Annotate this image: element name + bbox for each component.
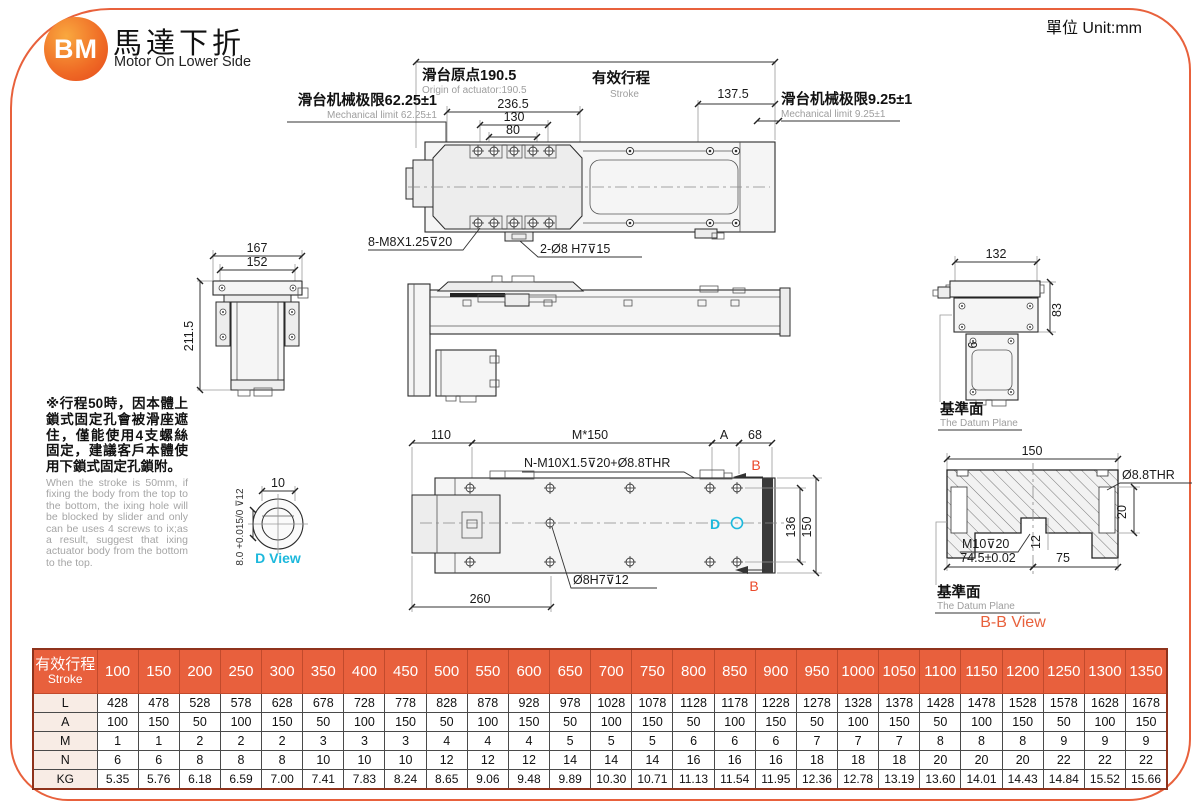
spec-cell: 1378: [879, 694, 920, 713]
stroke-column-header: 750: [632, 649, 673, 694]
row-label-kg: KG: [33, 770, 97, 790]
spec-cell: 150: [508, 713, 549, 732]
dim-136: 136: [784, 517, 798, 538]
stroke-column-header: 900: [755, 649, 796, 694]
stroke-column-header: 1000: [838, 649, 879, 694]
stroke-header-zh: 有效行程: [34, 657, 97, 672]
spec-cell: 14: [591, 751, 632, 770]
stroke-label-zh: 有效行程: [592, 69, 650, 87]
spec-cell: 150: [138, 713, 179, 732]
bb-view-label: B-B View: [980, 614, 1046, 631]
spec-cell: 10: [344, 751, 385, 770]
spec-cell: 8: [961, 732, 1002, 751]
spec-cell: 100: [220, 713, 261, 732]
dim-110: 110: [431, 428, 451, 442]
table-row-kg: KG5.355.766.186.597.007.417.838.248.659.…: [33, 770, 1167, 790]
stroke-column-header: 450: [385, 649, 426, 694]
dim-75: 75: [1056, 551, 1070, 565]
stroke-column-header: 400: [344, 649, 385, 694]
spec-cell: 50: [550, 713, 591, 732]
mounting-holes-label: N-M10X1.5⊽20+Ø8.8THR: [524, 456, 670, 470]
spec-cell: 11.95: [755, 770, 796, 790]
bb-datum-label-en: The Datum Plane: [937, 601, 1015, 612]
section-b-label-top: B: [751, 457, 760, 473]
dim-6: 6: [966, 341, 980, 348]
spec-cell: 150: [262, 713, 303, 732]
dim-130: 130: [504, 110, 525, 124]
dim-260: 260: [470, 592, 491, 606]
stroke-column-header: 1250: [1043, 649, 1084, 694]
spec-cell: 6: [673, 732, 714, 751]
spec-cell: 14: [550, 751, 591, 770]
dim-12: 12: [1029, 535, 1043, 549]
spec-cell: 5: [632, 732, 673, 751]
stroke-50-note: ※行程50時，因本體上鎖式固定孔會被滑座遮住，僅能使用4支螺絲固定，建議客戶本體…: [46, 396, 188, 569]
spec-cell: 4: [467, 732, 508, 751]
dim-167: 167: [247, 241, 268, 255]
spec-cell: 6: [714, 732, 755, 751]
row-label-m: M: [33, 732, 97, 751]
note-text-zh: ※行程50時，因本體上鎖式固定孔會被滑座遮住，僅能使用4支螺絲固定，建議客戶本體…: [46, 396, 188, 475]
spec-cell: 8: [920, 732, 961, 751]
spec-cell: 1228: [755, 694, 796, 713]
stroke-column-header: 650: [550, 649, 591, 694]
spec-cell: 878: [467, 694, 508, 713]
stroke-column-header: 1150: [961, 649, 1002, 694]
spec-cell: 7: [796, 732, 837, 751]
dim-150-bottom: 150: [800, 517, 814, 538]
stroke-column-header: 800: [673, 649, 714, 694]
spec-cell: 18: [838, 751, 879, 770]
bb-datum-label-zh: 基準面: [936, 583, 981, 601]
spec-cell: 9: [1084, 732, 1125, 751]
stroke-column-header: 700: [591, 649, 632, 694]
spec-cell: 12.78: [838, 770, 879, 790]
spec-cell: 9: [1043, 732, 1084, 751]
spec-cell: 8.65: [426, 770, 467, 790]
side-view-drawing: [408, 276, 790, 402]
spec-cell: 12: [508, 751, 549, 770]
spec-cell: 7.83: [344, 770, 385, 790]
spec-cell: 1578: [1043, 694, 1084, 713]
spec-cell: 50: [673, 713, 714, 732]
stroke-column-header: 100: [97, 649, 138, 694]
dim-pitch: M*150: [572, 428, 608, 442]
stroke-column-header: 850: [714, 649, 755, 694]
spec-cell: 6.18: [179, 770, 220, 790]
spec-cell: 778: [385, 694, 426, 713]
spec-cell: 8: [1002, 732, 1043, 751]
row-label-a: A: [33, 713, 97, 732]
spec-cell: 22: [1126, 751, 1167, 770]
spec-cell: 3: [344, 732, 385, 751]
stroke-column-header: 1100: [920, 649, 961, 694]
table-row-m: M11222333444555666777888999: [33, 732, 1167, 751]
spec-cell: 150: [1002, 713, 1043, 732]
dim-137-5: 137.5: [717, 87, 748, 101]
spec-cell: 100: [961, 713, 1002, 732]
spec-cell: 5.76: [138, 770, 179, 790]
spec-cell: 1078: [632, 694, 673, 713]
spec-cell: 4: [508, 732, 549, 751]
spec-cell: 3: [385, 732, 426, 751]
stroke-header-en: Stroke: [34, 672, 97, 687]
stroke-column-header: 300: [262, 649, 303, 694]
table-row-l: L428478528578628678728778828878928978102…: [33, 694, 1167, 713]
spec-cell: 1678: [1126, 694, 1167, 713]
thr-hole-label: Ø8.8THR: [1122, 468, 1175, 482]
spec-cell: 20: [920, 751, 961, 770]
top-view-drawing: 滑台原点190.5 Origin of actuator:190.5 有效行程 …: [287, 62, 912, 257]
bottom-view-drawing: 110 M*150 A 68 N-M10X1.5⊽20+Ø8.8THR B D: [412, 428, 822, 612]
stroke-column-header: 1300: [1084, 649, 1125, 694]
spec-cell: 2: [262, 732, 303, 751]
dim-10: 10: [271, 476, 285, 490]
spec-cell: 5: [550, 732, 591, 751]
spec-cell: 14.43: [1002, 770, 1043, 790]
right-end-view-drawing: 132 83 6 基準面 The Datum Plane: [933, 247, 1064, 430]
limit-left-zh: 滑台机械极限62.25±1: [298, 91, 437, 109]
spec-cell: 578: [220, 694, 261, 713]
spec-cell: 5.35: [97, 770, 138, 790]
spec-cell: 1328: [838, 694, 879, 713]
spec-cell: 10: [385, 751, 426, 770]
spec-cell: 8: [262, 751, 303, 770]
spec-cell: 11.13: [673, 770, 714, 790]
spec-cell: 150: [755, 713, 796, 732]
dim-20: 20: [1115, 505, 1129, 519]
spec-cell: 7: [838, 732, 879, 751]
dim-80: 80: [506, 123, 520, 137]
spec-cell: 16: [673, 751, 714, 770]
spec-cell: 50: [179, 713, 220, 732]
spec-cell: 1128: [673, 694, 714, 713]
spec-cell: 50: [426, 713, 467, 732]
spec-cell: 11.54: [714, 770, 755, 790]
spec-cell: 2: [179, 732, 220, 751]
spec-cell: 50: [920, 713, 961, 732]
spec-cell: 6.59: [220, 770, 261, 790]
spec-cell: 1428: [920, 694, 961, 713]
dim-150-bb: 150: [1022, 444, 1043, 458]
spec-cell: 100: [97, 713, 138, 732]
spec-cell: 9.89: [550, 770, 591, 790]
spec-cell: 8: [179, 751, 220, 770]
spec-cell: 528: [179, 694, 220, 713]
stroke-column-header: 200: [179, 649, 220, 694]
spec-cell: 14.01: [961, 770, 1002, 790]
spec-cell: 16: [755, 751, 796, 770]
spec-cell: 8: [220, 751, 261, 770]
dim-211-5: 211.5: [182, 321, 196, 351]
section-b-label-bottom: B: [749, 578, 758, 594]
spec-cell: 728: [344, 694, 385, 713]
row-label-n: N: [33, 751, 97, 770]
spec-cell: 1178: [714, 694, 755, 713]
stroke-column-header: 1200: [1002, 649, 1043, 694]
spec-cell: 1028: [591, 694, 632, 713]
note-text-en: When the stroke is 50mm, if fixing the b…: [46, 478, 188, 569]
datum-label-en: The Datum Plane: [940, 418, 1018, 429]
tap-hole-label: M10⊽20: [962, 537, 1009, 551]
stroke-column-header: 1350: [1126, 649, 1167, 694]
spec-cell: 928: [508, 694, 549, 713]
spec-cell: 50: [796, 713, 837, 732]
spec-cell: 5: [591, 732, 632, 751]
stroke-table: 有效行程Stroke100150200250300350400450500550…: [32, 648, 1168, 790]
stroke-column-header: 550: [467, 649, 508, 694]
stroke-column-header: 150: [138, 649, 179, 694]
stroke-column-header: 950: [796, 649, 837, 694]
origin-label-en: Origin of actuator:190.5: [422, 85, 527, 96]
stroke-label-en: Stroke: [610, 89, 639, 100]
spec-cell: 6: [755, 732, 796, 751]
limit-right-en: Mechanical limit 9.25±1: [781, 109, 886, 120]
spec-cell: 678: [303, 694, 344, 713]
table-header-row: 有效行程Stroke100150200250300350400450500550…: [33, 649, 1167, 694]
origin-label-zh: 滑台原点190.5: [422, 66, 516, 84]
spec-cell: 15.66: [1126, 770, 1167, 790]
spec-cell: 478: [138, 694, 179, 713]
dowel-spec-label: 2-Ø8 H7⊽15: [540, 242, 610, 256]
pin-hole-label: Ø8H7⊽12: [573, 573, 629, 587]
dim-152: 152: [247, 255, 268, 269]
spec-cell: 1478: [961, 694, 1002, 713]
table-row-n: N668881010101212121414141616161818182020…: [33, 751, 1167, 770]
spec-cell: 100: [591, 713, 632, 732]
spec-cell: 6: [138, 751, 179, 770]
spec-cell: 100: [467, 713, 508, 732]
spec-cell: 978: [550, 694, 591, 713]
table-row-a: A100150501001505010015050100150501001505…: [33, 713, 1167, 732]
stroke-column-header: 250: [220, 649, 261, 694]
spec-cell: 100: [344, 713, 385, 732]
spec-cell: 15.52: [1084, 770, 1125, 790]
spec-cell: 16: [714, 751, 755, 770]
spec-cell: 20: [1002, 751, 1043, 770]
spec-cell: 7.00: [262, 770, 303, 790]
spec-cell: 8.24: [385, 770, 426, 790]
stroke-column-header: 350: [303, 649, 344, 694]
spec-cell: 150: [879, 713, 920, 732]
spec-cell: 12: [426, 751, 467, 770]
spec-cell: 9.48: [508, 770, 549, 790]
dim-83: 83: [1050, 303, 1064, 317]
spec-cell: 150: [632, 713, 673, 732]
dim-132: 132: [986, 247, 1007, 261]
limit-left-en: Mechanical limit 62.25±1: [327, 110, 437, 121]
d-view-label: D View: [255, 550, 301, 566]
spec-cell: 9.06: [467, 770, 508, 790]
spec-cell: 828: [426, 694, 467, 713]
datasheet-page: BM 馬達下折 Motor On Lower Side 單位 Unit:mm 滑…: [0, 0, 1200, 809]
spec-cell: 1628: [1084, 694, 1125, 713]
spec-cell: 100: [714, 713, 755, 732]
d-view-drawing: 10 8.0 +0.015/0 ⊽12 D View: [235, 476, 308, 566]
left-end-view-drawing: 167 152 211.5: [182, 241, 308, 396]
spec-cell: 14.84: [1043, 770, 1084, 790]
bb-view-drawing: 150 Ø8.8THR 20 12 M10⊽20 74.5±0.02 75 基準…: [935, 444, 1192, 631]
spec-cell: 4: [426, 732, 467, 751]
dim-74-5: 74.5±0.02: [960, 551, 1016, 565]
stroke-spec-section: 有效行程Stroke100150200250300350400450500550…: [32, 648, 1168, 790]
dim-236-5: 236.5: [497, 97, 528, 111]
stroke-column-header: 1050: [879, 649, 920, 694]
spec-cell: 18: [796, 751, 837, 770]
spec-cell: 150: [385, 713, 426, 732]
spec-cell: 12.36: [796, 770, 837, 790]
spec-cell: 2: [220, 732, 261, 751]
spec-cell: 18: [879, 751, 920, 770]
spec-cell: 10.30: [591, 770, 632, 790]
spec-cell: 150: [1126, 713, 1167, 732]
dim-a: A: [720, 428, 729, 442]
stroke-column-header: 500: [426, 649, 467, 694]
spec-cell: 3: [303, 732, 344, 751]
spec-cell: 13.60: [920, 770, 961, 790]
d-view-tolerance: 8.0 +0.015/0 ⊽12: [235, 488, 246, 566]
spec-cell: 12: [467, 751, 508, 770]
spec-cell: 10.71: [632, 770, 673, 790]
spec-cell: 14: [632, 751, 673, 770]
screw-spec-label: 8-M8X1.25⊽20: [368, 235, 452, 249]
spec-cell: 9: [1126, 732, 1167, 751]
spec-cell: 7: [879, 732, 920, 751]
datum-label-zh: 基準面: [939, 400, 984, 418]
spec-cell: 1: [138, 732, 179, 751]
d-marker-label: D: [710, 516, 720, 532]
spec-cell: 7.41: [303, 770, 344, 790]
spec-cell: 1278: [796, 694, 837, 713]
limit-right-zh: 滑台机械极限9.25±1: [781, 90, 912, 108]
spec-cell: 13.19: [879, 770, 920, 790]
stroke-column-header: 600: [508, 649, 549, 694]
spec-cell: 100: [1084, 713, 1125, 732]
spec-cell: 20: [961, 751, 1002, 770]
table-header-stroke: 有效行程Stroke: [33, 649, 97, 694]
row-label-l: L: [33, 694, 97, 713]
spec-cell: 628: [262, 694, 303, 713]
spec-cell: 50: [303, 713, 344, 732]
spec-cell: 10: [303, 751, 344, 770]
spec-cell: 6: [97, 751, 138, 770]
spec-cell: 100: [838, 713, 879, 732]
spec-cell: 1528: [1002, 694, 1043, 713]
spec-cell: 22: [1043, 751, 1084, 770]
spec-cell: 1: [97, 732, 138, 751]
dim-68: 68: [748, 428, 762, 442]
spec-cell: 22: [1084, 751, 1125, 770]
spec-cell: 50: [1043, 713, 1084, 732]
spec-cell: 428: [97, 694, 138, 713]
